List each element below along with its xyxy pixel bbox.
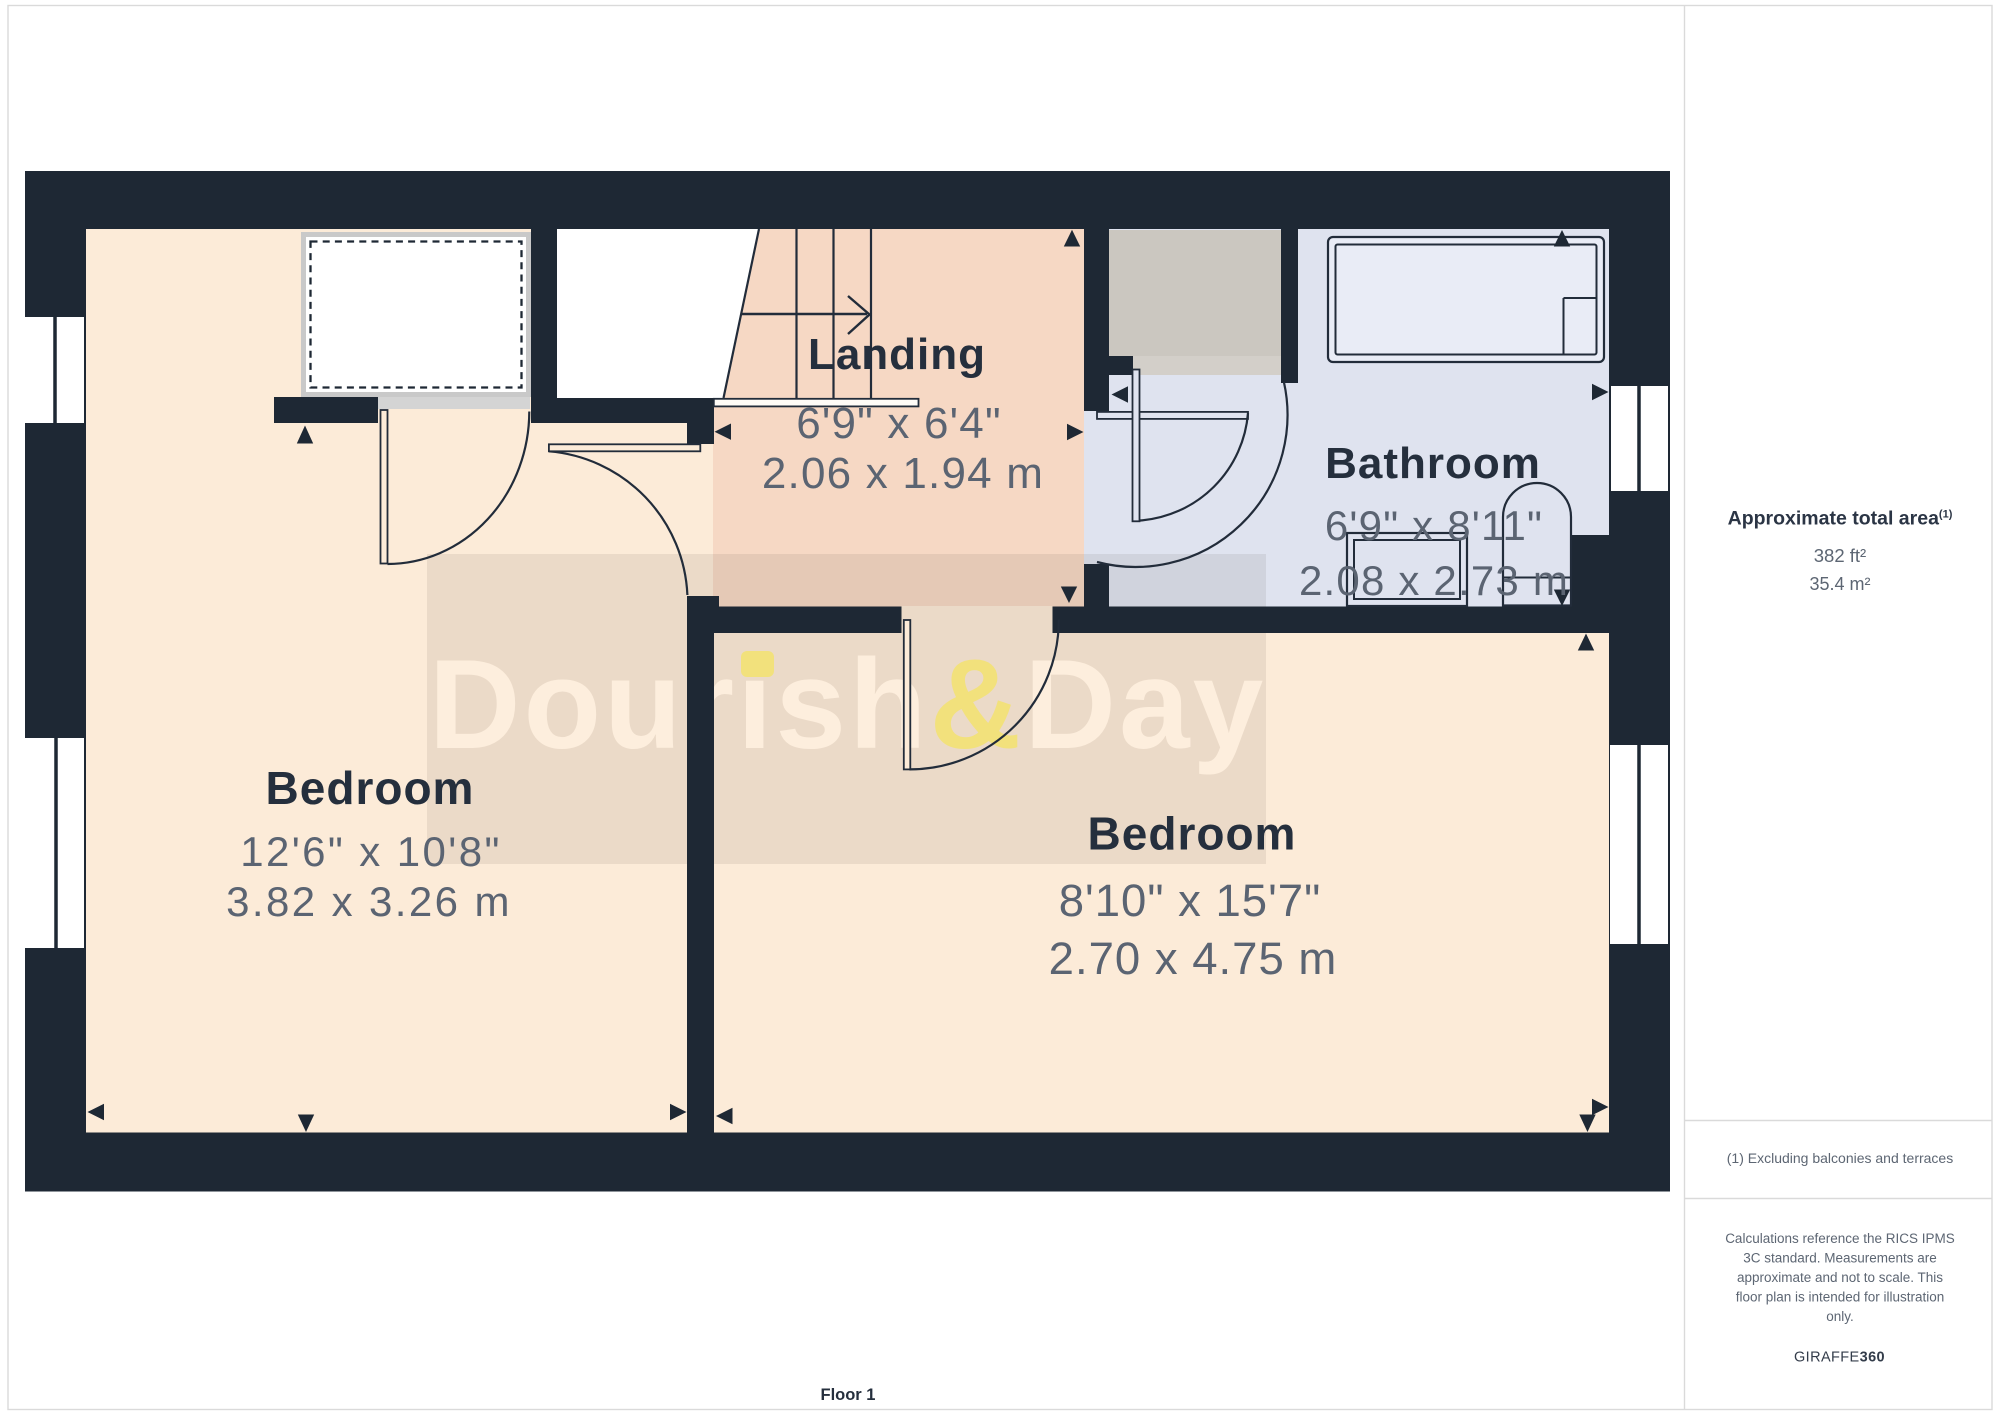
svg-text:3.82 x 3.26 m: 3.82 x 3.26 m — [226, 878, 512, 925]
svg-text:382 ft²: 382 ft² — [1814, 545, 1866, 566]
svg-text:3C standard. Measurements are: 3C standard. Measurements are — [1743, 1251, 1937, 1266]
svg-text:Dourısh&Day: Dourısh&Day — [429, 633, 1267, 775]
svg-text:Bedroom: Bedroom — [266, 762, 475, 814]
svg-text:Landing: Landing — [808, 330, 986, 379]
svg-text:Calculations reference the RIC: Calculations reference the RICS IPMS — [1725, 1231, 1955, 1246]
svg-text:2.08 x 2.73 m: 2.08 x 2.73 m — [1299, 557, 1569, 604]
svg-text:GIRAFFE360: GIRAFFE360 — [1794, 1350, 1885, 1366]
svg-text:6'9" x 6'4": 6'9" x 6'4" — [796, 399, 1002, 448]
svg-text:Bedroom: Bedroom — [1088, 808, 1297, 860]
svg-text:floor plan is intended for ill: floor plan is intended for illustration — [1736, 1290, 1945, 1305]
svg-text:Approximate total area(1): Approximate total area(1) — [1728, 508, 1953, 530]
svg-text:2.06 x 1.94 m: 2.06 x 1.94 m — [762, 449, 1044, 498]
svg-text:approximate and not to scale.: approximate and not to scale. This — [1737, 1270, 1943, 1285]
svg-text:Floor 1: Floor 1 — [820, 1386, 875, 1404]
svg-text:2.70 x 4.75 m: 2.70 x 4.75 m — [1049, 933, 1338, 984]
svg-text:35.4 m²: 35.4 m² — [1809, 574, 1870, 594]
svg-text:12'6" x 10'8": 12'6" x 10'8" — [240, 828, 502, 875]
svg-text:(1) Excluding balconies and te: (1) Excluding balconies and terraces — [1727, 1150, 1953, 1166]
svg-text:Bathroom: Bathroom — [1325, 439, 1541, 488]
svg-text:6'9" x 8'11": 6'9" x 8'11" — [1325, 502, 1543, 549]
svg-text:8'10" x 15'7": 8'10" x 15'7" — [1059, 875, 1322, 926]
svg-text:only.: only. — [1826, 1309, 1854, 1324]
